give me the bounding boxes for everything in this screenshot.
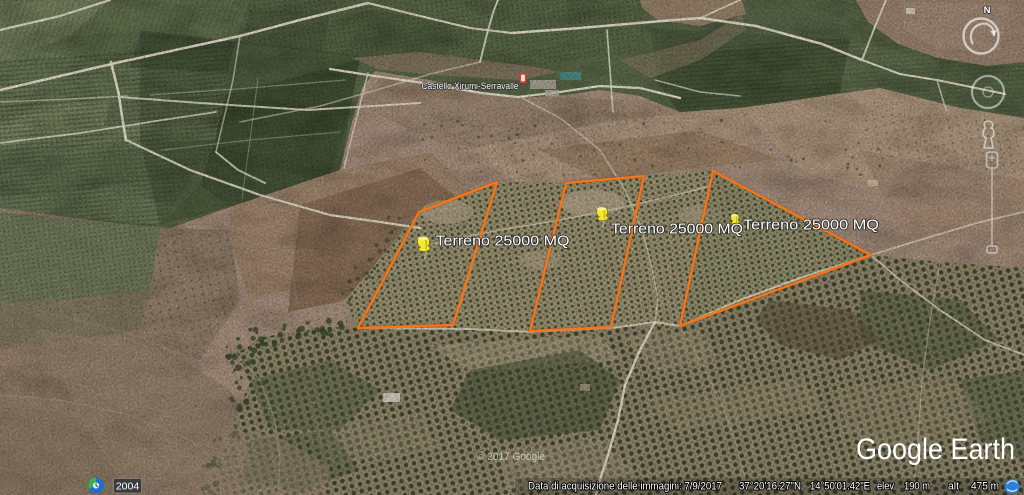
svg-text:alt: alt: [948, 481, 959, 493]
svg-text:2004: 2004: [116, 481, 140, 493]
svg-text:Terreno 25000 MQ: Terreno 25000 MQ: [743, 218, 879, 234]
svg-text:37°20'16.27"N: 37°20'16.27"N: [739, 481, 801, 493]
svg-text:Data di acquisizione delle imm: Data di acquisizione delle immagini: 7/9…: [528, 481, 722, 493]
svg-text:190 m: 190 m: [904, 481, 930, 493]
svg-text:© 2017 Google: © 2017 Google: [477, 451, 545, 463]
svg-text:Terreno 25000 MQ: Terreno 25000 MQ: [436, 234, 570, 250]
svg-text:475 m: 475 m: [971, 481, 999, 493]
svg-text:Terreno 25000 MQ: Terreno 25000 MQ: [611, 222, 743, 238]
svg-text:Google Earth: Google Earth: [856, 433, 1015, 466]
svg-text:N: N: [984, 5, 991, 16]
svg-text:Castello Xirumi-Serravalle: Castello Xirumi-Serravalle: [422, 81, 519, 91]
svg-text:14°50'01.42"E: 14°50'01.42"E: [810, 481, 870, 493]
svg-text:elev: elev: [877, 481, 894, 493]
